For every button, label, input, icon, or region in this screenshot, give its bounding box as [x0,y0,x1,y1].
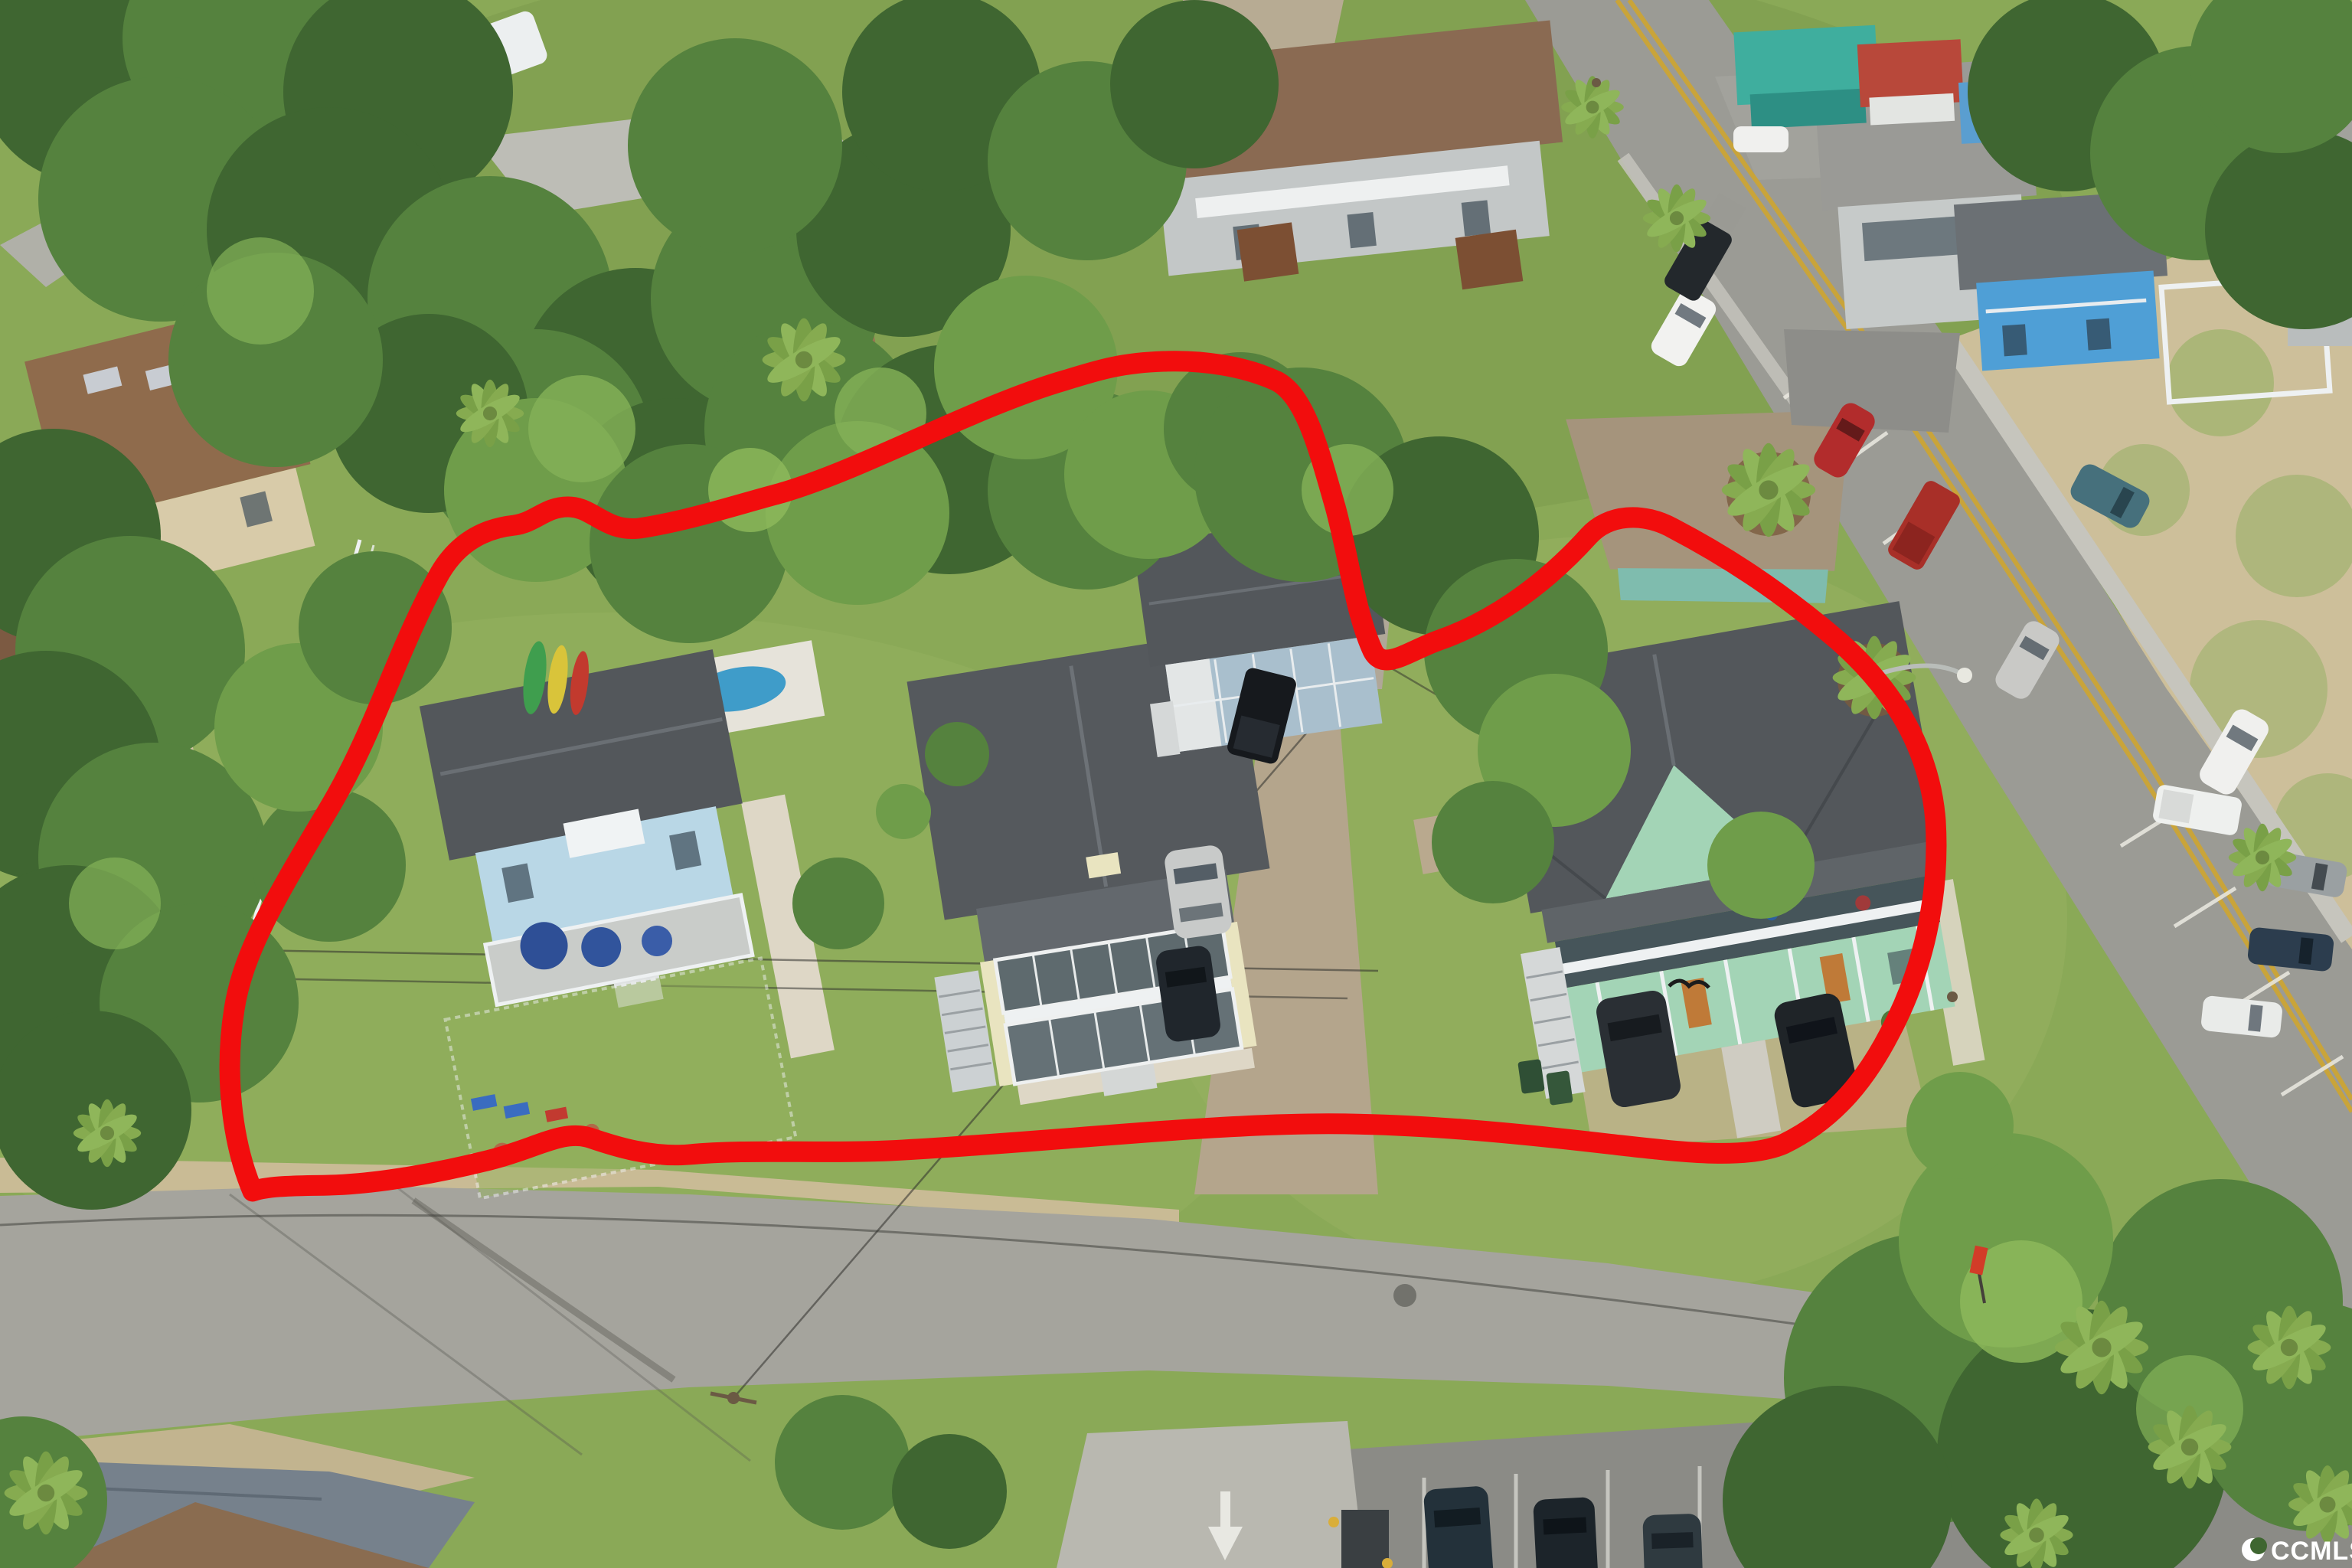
trash-bin [1546,1070,1573,1106]
car-parked-lot3 [1642,1514,1704,1568]
planter-box [1237,222,1299,281]
car-white-top [1733,126,1788,152]
manhole [1393,1284,1416,1307]
parking-sign [1341,1510,1389,1568]
concrete-apron [1057,1421,1364,1568]
trash-bin [1517,1059,1545,1094]
house-red-roof [1857,39,1965,126]
house-teal-cottage [1733,25,1880,130]
car-silver-suv [1163,844,1233,939]
planter-box [1455,230,1524,289]
watermark-text: CCMLS [2271,1537,2352,1566]
car-parked-lot2 [1533,1497,1599,1568]
aerial-listing-photo: CCMLS [0,0,2352,1568]
car-parked-lot1 [1423,1485,1494,1568]
